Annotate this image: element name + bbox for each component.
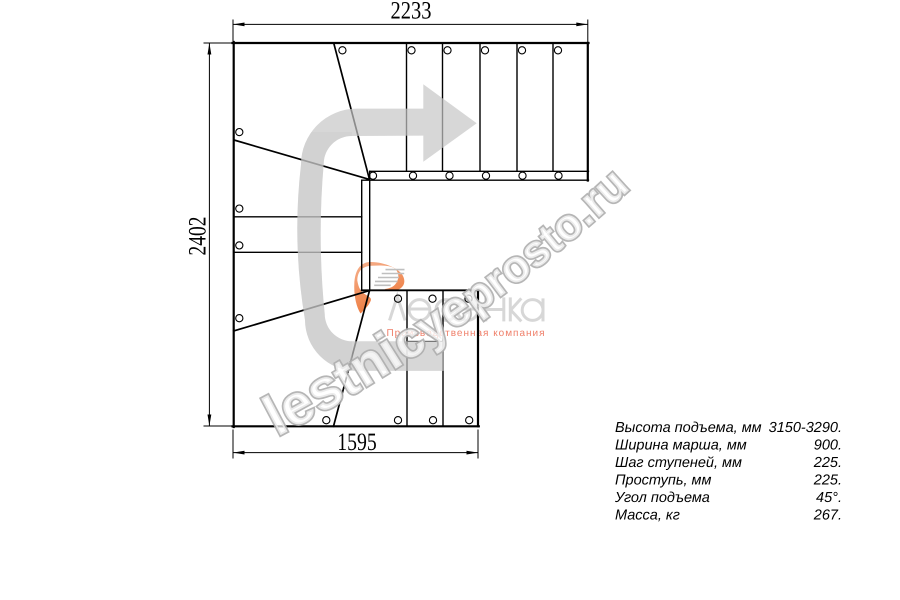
svg-text:Высота подъема, мм: Высота подъема, мм: [615, 420, 762, 436]
svg-text:3150-3290.: 3150-3290.: [769, 420, 842, 436]
svg-text:45°.: 45°.: [816, 490, 842, 506]
svg-text:900.: 900.: [814, 438, 842, 454]
svg-text:Ширина марша, мм: Ширина марша, мм: [615, 438, 747, 454]
svg-text:225.: 225.: [813, 455, 842, 471]
svg-text:267.: 267.: [813, 508, 842, 524]
svg-text:Масса, кг: Масса, кг: [615, 508, 680, 524]
svg-text:2233: 2233: [391, 0, 432, 25]
svg-text:2402: 2402: [185, 217, 212, 256]
svg-text:Шаг ступеней, мм: Шаг ступеней, мм: [615, 455, 742, 471]
svg-text:225.: 225.: [813, 473, 842, 489]
svg-text:1595: 1595: [337, 429, 377, 456]
svg-text:Угол подъема: Угол подъема: [614, 490, 710, 506]
svg-text:Проступь, мм: Проступь, мм: [615, 473, 711, 489]
